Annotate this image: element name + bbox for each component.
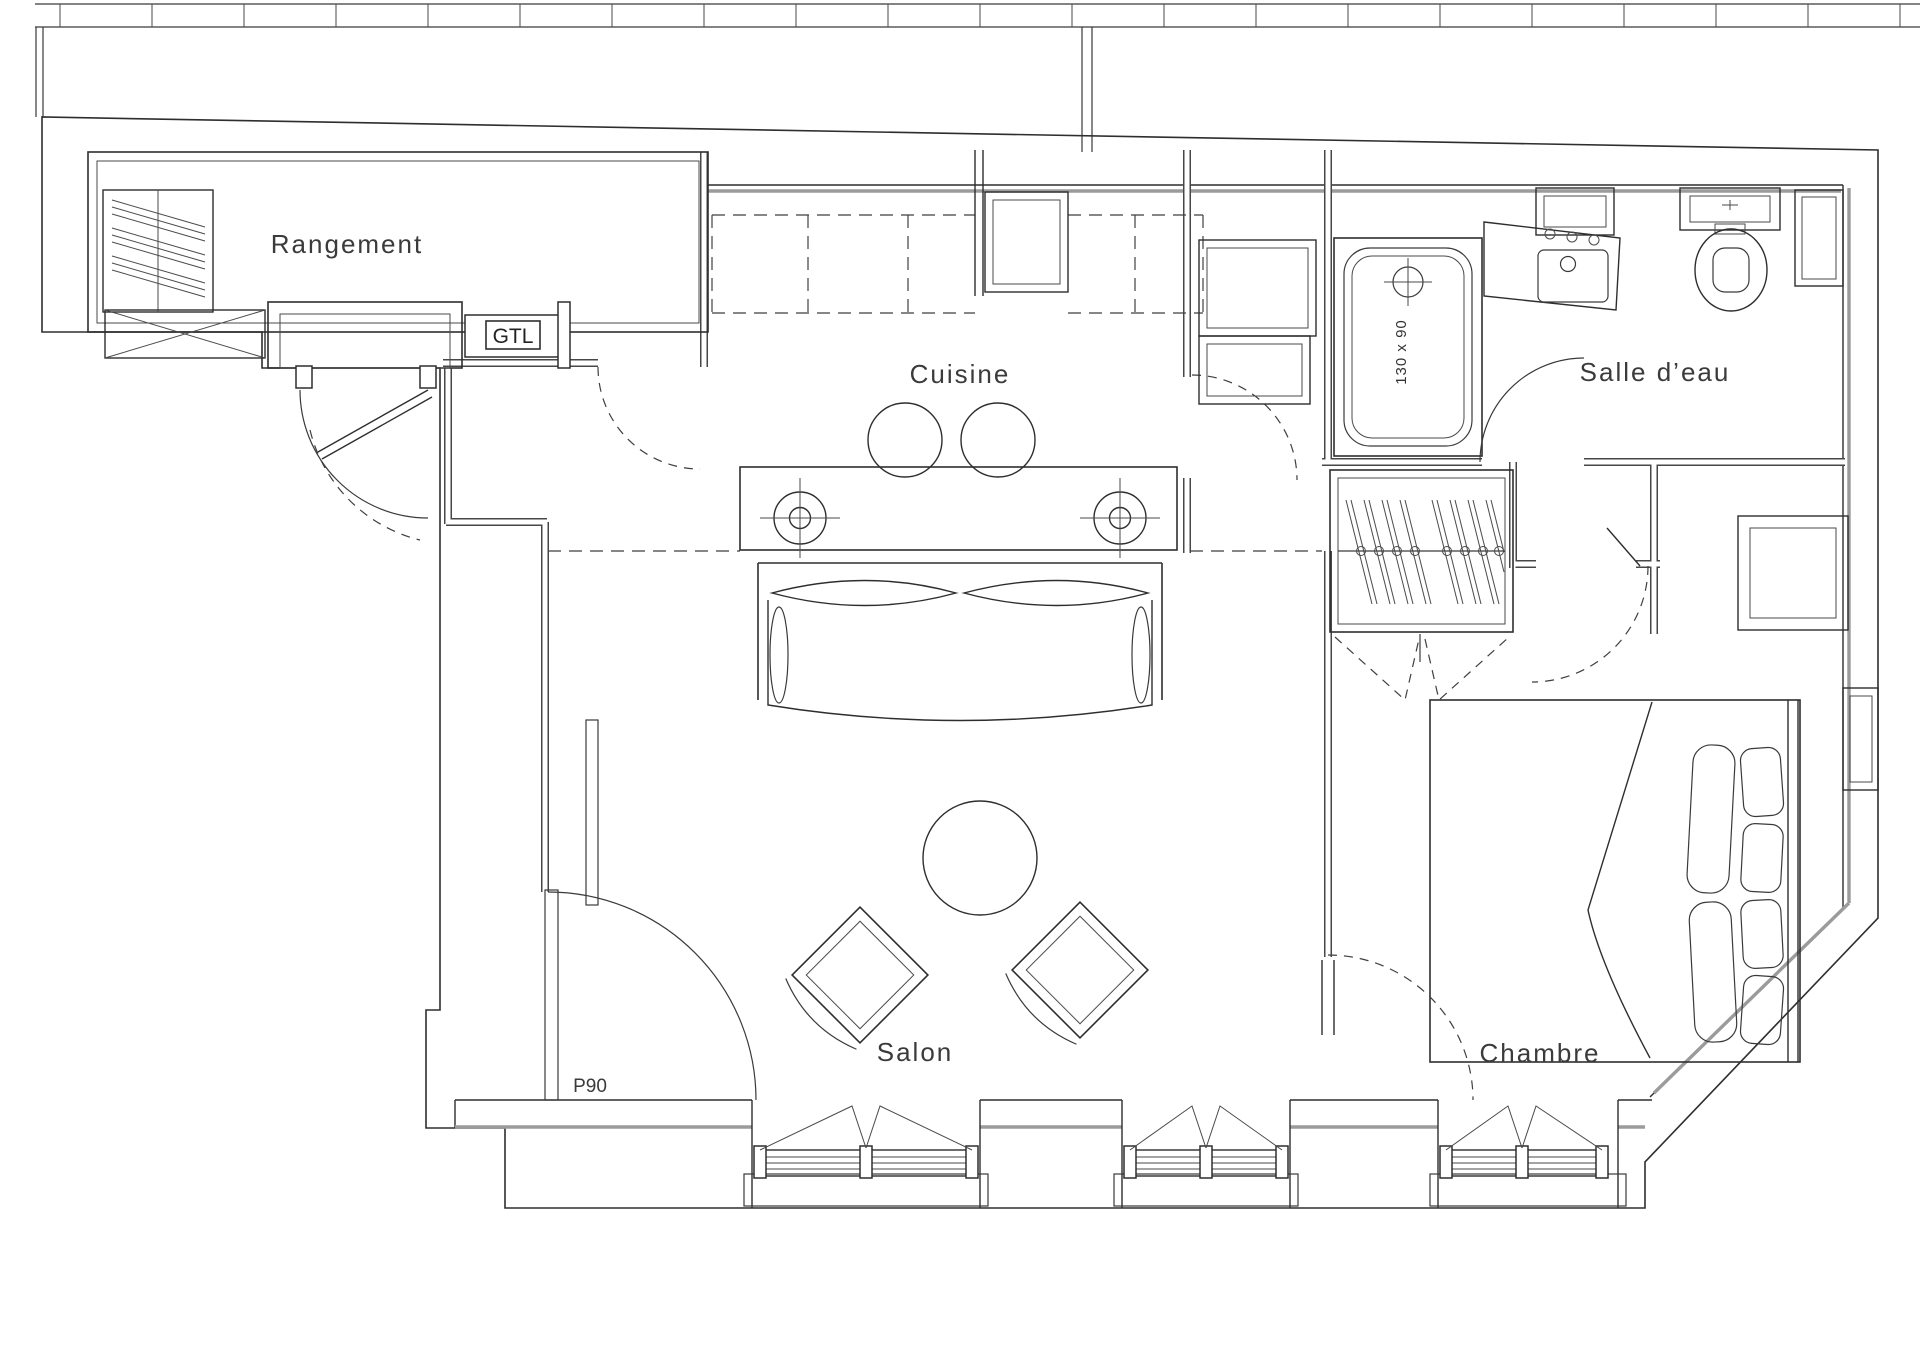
faucet [1561, 257, 1576, 272]
armchair-right [999, 901, 1150, 1052]
bathroom-window [1536, 188, 1614, 235]
double-bed [1430, 700, 1800, 1062]
gtl-electrical-box: GTL [465, 302, 570, 368]
door-label-p90: P90 [573, 1076, 607, 1097]
wall-radiator [586, 720, 598, 905]
bathtub-drain [1384, 258, 1432, 306]
p90-door-leaf [545, 890, 558, 1100]
overhead-cabinets-dashed [712, 215, 1203, 313]
entry-door [268, 302, 462, 540]
bathtub-size-label: 130 x 90 [1393, 319, 1410, 385]
room-label-chambre: Chambre [1480, 1038, 1601, 1068]
room-label-cuisine: Cuisine [910, 359, 1011, 389]
interior-walls [443, 150, 1845, 957]
wall-pillar [558, 302, 570, 368]
bifold-doors-dashed [1335, 634, 1509, 700]
armchair-left [779, 906, 930, 1057]
bathtub: 130 x 90 [1334, 238, 1482, 456]
bathroom-door-swing [1480, 358, 1584, 462]
coat-hangers [1346, 500, 1504, 604]
pillows [1686, 744, 1784, 1045]
armrest [1132, 607, 1150, 703]
corner-cabinet [1795, 190, 1843, 286]
seat [768, 600, 1152, 721]
back-cushions [772, 581, 1148, 606]
chambre-top-door [1532, 528, 1648, 682]
kitchen-island [740, 467, 1177, 558]
vestibule-door-swing [598, 367, 700, 469]
french-window-salon-left [744, 1100, 988, 1208]
room-label-salon: Salon [877, 1037, 954, 1067]
armrest [770, 607, 788, 703]
outer-wall-boundary [42, 117, 1878, 1208]
kitchen-passage-door-swing [1192, 375, 1297, 480]
sofa [758, 563, 1162, 721]
floor-plan-drawing: GTL [0, 0, 1920, 1356]
duvet-fold [1588, 702, 1652, 1058]
reserved-cross-area [105, 310, 265, 358]
wardrobe [1330, 470, 1513, 700]
bar-stools [868, 403, 1035, 477]
chambre-door-leaf [1322, 960, 1334, 1035]
refrigerator-unit [975, 150, 1068, 296]
door-jamb [296, 366, 312, 388]
room-label-rangement: Rangement [271, 229, 423, 259]
room-cuisine [548, 150, 1322, 558]
p90-door [545, 890, 756, 1100]
gtl-label: GTL [493, 325, 534, 348]
french-window-chambre [1430, 1100, 1626, 1208]
coffee-table [923, 801, 1037, 915]
hob-crosshair-left [760, 478, 840, 558]
hob-crosshair-right [1080, 478, 1160, 558]
appliance-column [1199, 240, 1316, 404]
door-jamb [420, 366, 436, 388]
window-alcove [1738, 516, 1848, 630]
toilet [1680, 188, 1780, 311]
p90-door-swing [548, 892, 756, 1100]
room-label-salle-deau: Salle d’eau [1580, 357, 1731, 387]
storage-shelves [103, 190, 213, 312]
room-salle-deau: 130 x 90 [1334, 188, 1843, 462]
french-window-salon-right [1114, 1100, 1298, 1208]
floor-plan-sheet: GTL [0, 0, 1920, 1356]
top-boundary-strip [35, 4, 1920, 152]
chambre-door-swing [1328, 955, 1473, 1100]
